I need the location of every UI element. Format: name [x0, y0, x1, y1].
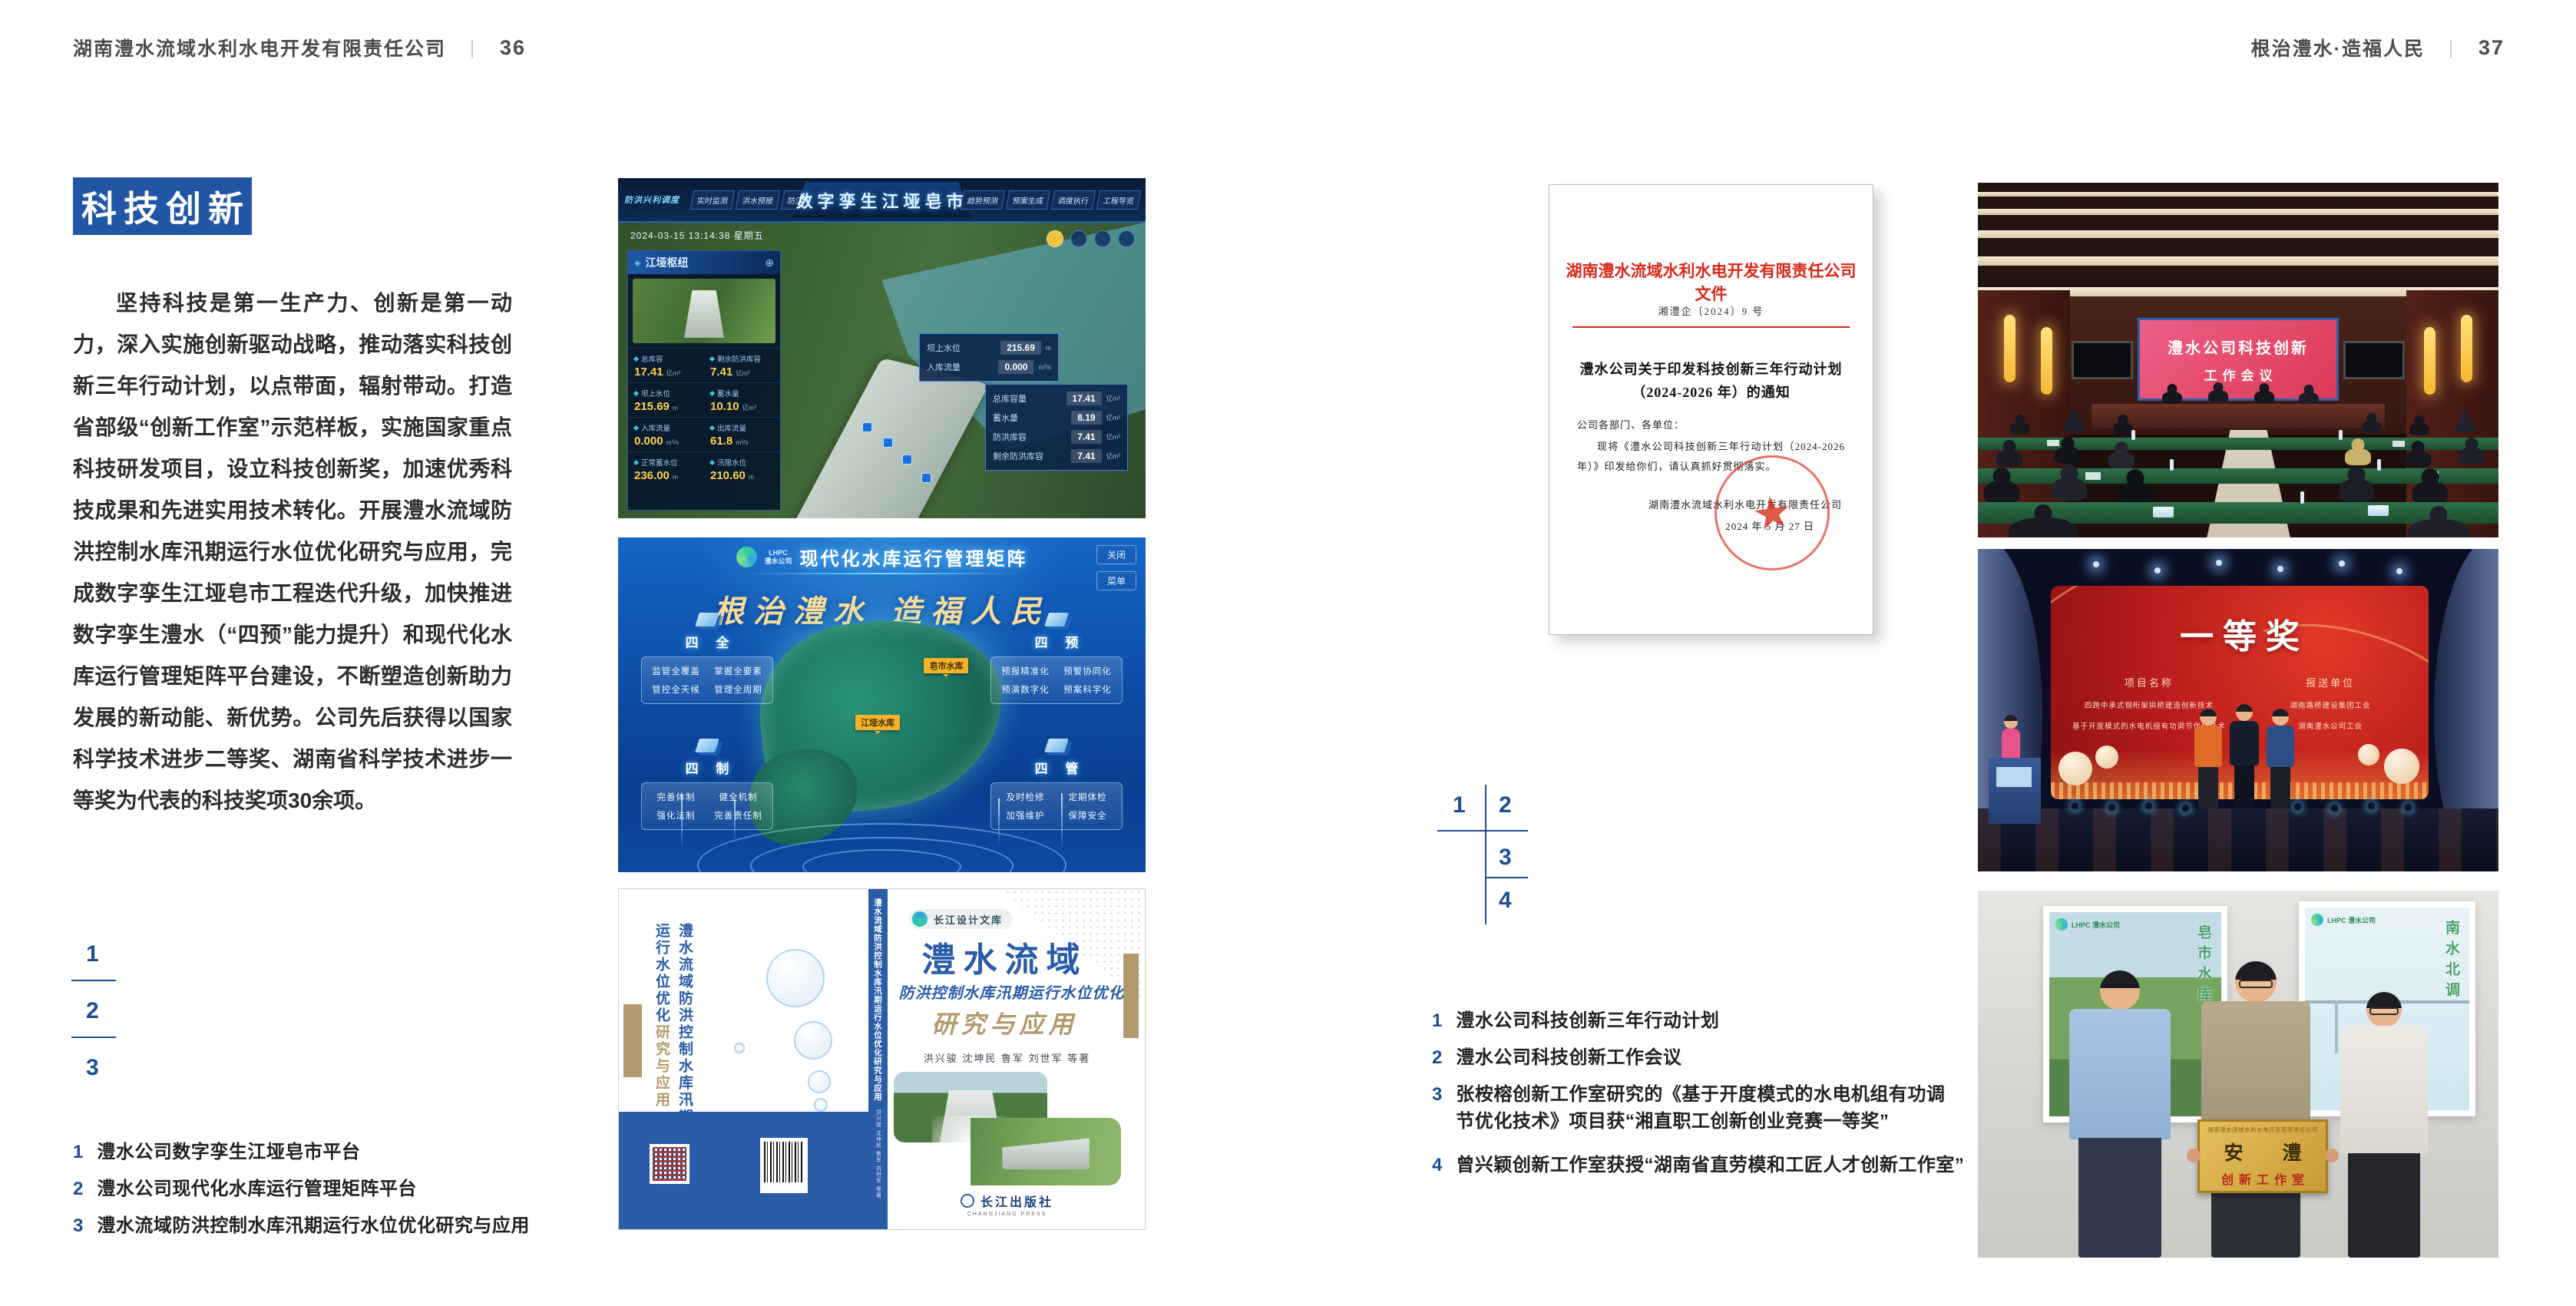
caption-number: 1 — [1432, 1007, 1442, 1034]
person-silhouette — [2455, 420, 2475, 432]
person-silhouette — [2339, 479, 2374, 502]
spine-authors: 洪兴骏 沈坤民 鲁军 刘世军 等著 — [875, 1109, 882, 1199]
caption-row: 3 张桉榕创新工作室研究的《基于开度模式的水电机组有功调节优化技术》项目获“湘直… — [1432, 1081, 1960, 1135]
man-khaki-polo — [2201, 961, 2310, 1258]
flower-sphere — [2384, 749, 2419, 784]
map-pin-icon — [883, 438, 893, 448]
dashboard-tab-group-right: 趋势预测 预案生成 调度执行 工程导览 — [962, 190, 1139, 210]
person-silhouette — [1984, 481, 2019, 504]
spotlight — [2216, 560, 2222, 566]
water-droplet — [794, 1021, 832, 1060]
plaque-header: 湖南澧水流域水利水电开发有限责任公司 — [2207, 1126, 2318, 1134]
back-cover-accent — [623, 1004, 642, 1077]
tissue-box — [2153, 507, 2174, 517]
cover-photo-power-plant — [971, 1118, 1121, 1185]
glasses-icon — [2369, 1007, 2399, 1015]
figure-index-number: 2 — [1499, 792, 1512, 818]
caption-text: 澧水公司现代化水库运行管理矩阵平台 — [97, 1175, 417, 1202]
caption-text: 澧水公司科技创新三年行动计划 — [1456, 1007, 1719, 1034]
person-silhouette — [2010, 422, 2030, 435]
caption-text: 澧水公司数字孪生江垭皂市平台 — [97, 1139, 360, 1165]
light-pillar — [998, 798, 1000, 845]
dashboard-tab: 实时监测 — [690, 190, 735, 210]
page-number-right: 37 — [2478, 36, 2505, 60]
publisher-logo-icon — [912, 911, 928, 927]
figure-index-divider — [1437, 830, 1528, 832]
spotlight — [2277, 566, 2283, 572]
light-pillar — [681, 795, 683, 849]
barcode — [760, 1138, 808, 1193]
presenter-dark-suit — [2228, 704, 2260, 808]
spotlight — [2154, 567, 2161, 574]
spotlight — [2093, 561, 2099, 567]
hand — [2187, 1149, 2201, 1162]
map-pin-icon — [921, 473, 931, 483]
tissue-box — [2368, 505, 2389, 516]
dashboard-tab: 预案生成 — [1006, 190, 1050, 210]
front-cover-accent — [1123, 954, 1139, 1038]
stat-cell: 汛限水位210.60m — [704, 451, 780, 486]
cube-icon — [1044, 739, 1069, 752]
person-silhouette — [2009, 517, 2078, 537]
water-droplet — [766, 949, 825, 1007]
document-title: （2024-2026 年）的通知 — [1549, 382, 1873, 402]
meeting-screen-subtitle: 工作会议 — [2199, 365, 2278, 384]
locate-icon — [1094, 230, 1111, 247]
dashboard-timestamp: 2024-03-15 13:14:38 星期五 — [630, 229, 764, 242]
figure-book-cover: 澧水流域防洪控制水库汛期运行水位优化研究与应用 澧水流域防洪控制水库汛期运行水位… — [618, 888, 1146, 1230]
dashboard-title: 数字孪生江垭皂市 — [793, 182, 971, 218]
meeting-screen-title: 澧水公司科技创新 — [2168, 336, 2309, 358]
figure-matrix-platform: LHPC澧水公司 现代化水库运行管理矩阵 关闭 菜单 根治澧水 造福人民 江垭水… — [618, 537, 1146, 872]
book-authors: 洪兴骏 沈坤民 鲁军 刘世军 等著 — [888, 1050, 1126, 1065]
dashboard-tab: 工程导览 — [1096, 190, 1141, 210]
company-logo-icon — [736, 547, 756, 567]
person-silhouette — [2345, 448, 2371, 465]
person-silhouette — [2459, 448, 2485, 465]
side-panel-title: 江垭枢纽 — [645, 255, 688, 270]
book-spine: 澧水流域防洪控制水库汛期运行水位优化研究与应用 洪兴骏 沈坤民 鲁军 刘世军 等… — [868, 889, 888, 1230]
page-motto: 根治澧水·造福人民 — [2251, 34, 2425, 61]
caption-row: 1 澧水公司数字孪生江垭皂市平台 — [73, 1139, 534, 1165]
cube-icon — [1044, 613, 1069, 627]
person-silhouette — [2405, 451, 2431, 468]
side-panel-header: ◈ 江垭枢纽 ⊕ — [628, 251, 780, 274]
plaque-subtitle: 创新工作室 — [2216, 1169, 2310, 1188]
glasses-icon — [2239, 980, 2273, 988]
stat-cell: 坝上水位215.69m — [628, 382, 704, 417]
light-pillar — [1061, 793, 1063, 851]
person-silhouette — [2052, 478, 2087, 501]
person-silhouette — [2409, 423, 2429, 435]
company-logo-icon: LHPC 澧水公司 — [2055, 918, 2120, 931]
caption-text: 澧水流域防洪控制水库汛期运行水位优化研究与应用 — [97, 1212, 530, 1239]
caption-row: 4 曾兴颖创新工作室获授“湖南省直劳模和工匠人才创新工作室” — [1432, 1152, 1969, 1179]
figure-index-number: 1 — [86, 941, 99, 967]
flower-sphere — [2095, 746, 2118, 769]
water-droplet — [734, 1043, 745, 1053]
map-tooltip: 坝上水位215.69m 入库流量0.000m³/s — [919, 333, 1059, 382]
document-heading: 湖南澧水流域水利水电开发有限责任公司文件 — [1563, 259, 1859, 305]
flower-sphere — [2058, 752, 2092, 785]
stat-cell: 出库流量61.8m³/s — [704, 417, 780, 451]
figure-index-number: 1 — [1453, 792, 1466, 818]
caption-number: 1 — [73, 1139, 83, 1165]
dashboard-corner-label: 防洪兴利调度 — [624, 193, 680, 206]
map-info-box: 总库容量17.41亿m³ 蓄水量8.19亿m³ 防洪库容7.41亿m³ 剩余防洪… — [985, 384, 1128, 471]
matrix-group-siguan: 四 管 及时检修定期体检 加强维护保障安全 — [990, 739, 1123, 830]
caption-number: 2 — [73, 1175, 83, 1202]
water-bottle — [2377, 459, 2381, 471]
water-droplet — [808, 1070, 831, 1093]
caption-row: 2 澧水公司科技创新工作会议 — [1432, 1044, 1969, 1071]
figure-index-number: 4 — [1499, 888, 1512, 914]
person-silhouette — [2064, 419, 2084, 431]
stat-cell: 正常蓄水位236.00m — [628, 451, 704, 486]
matrix-title: 现代化水库运行管理矩阵 — [800, 544, 1028, 570]
cube-icon — [695, 613, 719, 627]
matrix-group-sizhi: 四 制 完善体制健全机制 强化法制完善责任制 — [641, 739, 773, 830]
head-table — [2092, 404, 2385, 428]
woman-white-top — [2340, 992, 2428, 1258]
dashboard-tab: 调度执行 — [1051, 190, 1096, 210]
series-logo: 长江设计文库 — [909, 909, 1012, 929]
water-bottle — [2170, 459, 2174, 471]
water-droplet — [814, 1098, 828, 1112]
flower-sphere — [2358, 744, 2379, 765]
caption-number: 2 — [1432, 1044, 1442, 1071]
paper — [2085, 472, 2101, 480]
person-silhouette — [2412, 481, 2448, 504]
award-title: 一等奖 — [2051, 609, 2429, 658]
stage-light — [2107, 802, 2117, 812]
body-paragraph: 坚持科技是第一生产力、创新是第一动力，深入实施创新驱动战略，推动落实科技创新三年… — [73, 283, 512, 822]
company-logo-icon: LHPC 澧水公司 — [2311, 914, 2376, 926]
user-icon — [1047, 230, 1063, 247]
man-light-blue-polo — [2069, 970, 2171, 1258]
caption-row: 1 澧水公司科技创新三年行动计划 — [1432, 1007, 1969, 1034]
document-title: 澧水公司关于印发科技创新三年行动计划 — [1549, 359, 1873, 379]
light-pillar — [734, 799, 736, 841]
publisher-block: 长江出版社 CHANGJIANG PRESS — [888, 1192, 1126, 1217]
stage-light — [2403, 802, 2413, 812]
cube-icon — [695, 739, 719, 752]
map-pin-icon — [862, 422, 872, 432]
stage-light — [2070, 801, 2080, 811]
spotlight — [2396, 568, 2402, 574]
map-pin-label: 江垭水库 — [855, 715, 900, 730]
stage-light — [2366, 801, 2376, 811]
hand — [2325, 1149, 2339, 1162]
spotlight — [2339, 560, 2345, 567]
wall-lamp — [2424, 327, 2435, 395]
map-pin-label: 皂市水库 — [924, 658, 968, 673]
expand-icon: ⊕ — [765, 256, 774, 269]
photo-innovation-meeting: 澧水公司科技创新 工作会议 — [1978, 183, 2498, 537]
caption-number: 4 — [1432, 1152, 1442, 1179]
header-glow-line — [744, 573, 1020, 574]
awardee-blue-jacket — [2265, 709, 2296, 808]
water-bottle — [2131, 430, 2135, 440]
wall-lamp — [2461, 315, 2472, 382]
stat-cell: 蓄水量10.10亿m³ — [704, 382, 780, 417]
caption-row: 3 澧水流域防洪控制水库汛期运行水位优化研究与应用 — [73, 1212, 549, 1239]
figure-index-divider — [71, 1037, 116, 1038]
diamond-icon: ◈ — [634, 258, 640, 268]
figure-index-number: 2 — [86, 998, 99, 1024]
stage-light — [2144, 801, 2154, 811]
person-silhouette — [2362, 421, 2382, 433]
person-silhouette — [2113, 422, 2133, 435]
running-header-left: 湖南澧水流域水利水电开发有限责任公司 ｜ 36 — [73, 34, 526, 61]
host-podium — [1989, 758, 2041, 824]
wall-tv — [2343, 341, 2405, 379]
settings-icon — [1118, 230, 1135, 247]
book-title: 澧水流域 — [888, 932, 1122, 981]
caption-text: 张桉榕创新工作室研究的《基于开度模式的水电机组有功调节优化技术》项目获“湘直职工… — [1456, 1081, 1951, 1135]
figure-index-divider — [1485, 877, 1528, 878]
wall-tv — [2072, 341, 2133, 379]
spine-title: 澧水流域防洪控制水库汛期运行水位优化研究与应用 — [872, 898, 884, 1102]
dashboard-header-bar: 防洪兴利调度 实时监测 洪水预报 防汛预警 数字孪生江垭皂市 趋势预测 预案生成… — [618, 178, 1146, 223]
caption-text: 曾兴颖创新工作室获授“湖南省直劳模和工匠人才创新工作室” — [1456, 1152, 1964, 1179]
stage-floor — [1978, 808, 2498, 871]
stat-cell: 总库容17.41亿m³ — [628, 348, 704, 382]
person-silhouette — [2299, 392, 2319, 405]
document-number: 湘澧企〔2024〕9 号 — [1549, 303, 1873, 318]
figure-index-number: 3 — [86, 1055, 99, 1081]
dashboard-tab: 趋势预测 — [961, 190, 1005, 210]
stage-light — [2181, 803, 2191, 813]
person-silhouette — [2162, 392, 2182, 404]
company-name: 湖南澧水流域水利水电开发有限责任公司 — [73, 34, 446, 61]
publisher-logo-icon — [961, 1194, 974, 1208]
water-bottle — [2300, 491, 2304, 504]
person-silhouette — [2254, 391, 2274, 403]
map-pin-icon — [902, 455, 912, 465]
person-silhouette — [2408, 519, 2469, 537]
stat-cell: 入库流量0.000m³/s — [628, 417, 704, 451]
poster-bridge-pier — [2335, 1000, 2338, 1053]
logo-caption: LHPC澧水公司 — [764, 549, 792, 566]
dashboard-toolbar — [1047, 230, 1135, 247]
award-plaque: 湖南澧水流域水利水电开发有限责任公司 安 澧 创新工作室 — [2197, 1119, 2328, 1193]
photo-award-ceremony: 一等奖 项目名称 四跨中承式钢桁架拱桥建造创新技术 基于开度模式的水电机组有功调… — [1978, 549, 2498, 871]
caption-number: 3 — [73, 1212, 83, 1239]
stat-cell: 剩余防洪库容7.41亿m³ — [704, 348, 780, 382]
poster-vertical-title: 南水北调 — [2441, 920, 2462, 1003]
book-subtitle: 防洪控制水库汛期运行水位优化 — [888, 980, 1136, 1003]
header-separator: ｜ — [2442, 35, 2462, 61]
matrix-group-siyu: 四 预 预报精准化预警协同化 预演数字化预案科学化 — [990, 613, 1123, 704]
wall-lamp — [2041, 327, 2052, 395]
caption-row: 2 澧水公司现代化水库运行管理矩阵平台 — [73, 1175, 534, 1202]
water-bottle — [2339, 430, 2343, 440]
running-header-right: 根治澧水·造福人民 ｜ 37 — [2251, 34, 2505, 61]
photo-official-document: 湖南澧水流域水利水电开发有限责任公司文件 湘澧企〔2024〕9 号 澧水公司关于… — [1549, 184, 1873, 635]
qr-code — [650, 1144, 689, 1184]
paper — [2392, 441, 2405, 447]
caption-number: 3 — [1432, 1081, 1442, 1108]
magazine-spread: 湖南澧水流域水利水电开发有限责任公司 ｜ 36 科技创新 坚持科技是第一生产力、… — [0, 0, 2576, 1306]
page-number-left: 36 — [500, 36, 526, 60]
person-silhouette — [2055, 447, 2081, 464]
document-red-rule — [1572, 326, 1850, 328]
wall-lamp — [2004, 315, 2015, 382]
dam-structure — [684, 290, 724, 338]
paper — [2047, 440, 2059, 446]
layers-icon — [1070, 230, 1087, 247]
figure-index-number: 3 — [1499, 845, 1512, 871]
dashboard-side-panel: ◈ 江垭枢纽 ⊕ 总库容17.41亿m³ 剩余防洪库容7.41亿m³ 坝上水位2… — [627, 250, 781, 511]
awardee-orange-jacket — [2193, 709, 2224, 808]
dashboard-tab: 洪水预报 — [736, 190, 780, 210]
dam-thumbnail-photo — [633, 279, 775, 343]
person-silhouette — [2108, 451, 2135, 468]
person-silhouette — [1996, 450, 2022, 467]
stats-grid: 总库容17.41亿m³ 剩余防洪库容7.41亿m³ 坝上水位215.69m 蓄水… — [628, 348, 780, 486]
figure-index-divider — [1485, 785, 1486, 924]
person-silhouette — [2208, 390, 2228, 402]
matrix-group-siquan: 四 全 监管全覆盖掌握全要素 管控全天候管理全周期 — [641, 613, 773, 704]
close-button: 关闭 — [1096, 545, 1136, 564]
book-subtitle2: 研究与应用 — [888, 1005, 1122, 1040]
section-badge: 科技创新 — [73, 177, 252, 235]
back-cover-vertical-title: 澧水流域防洪控制水库汛期运行水位优化研究与应用 — [650, 923, 696, 1138]
figure-index-divider — [71, 980, 116, 981]
photo-innovation-studio: LHPC 澧水公司 皂市水库 LHPC 澧水公司 南水北调 — [1978, 891, 2498, 1258]
stage-light — [2330, 803, 2340, 813]
matrix-header: LHPC澧水公司 现代化水库运行管理矩阵 — [736, 544, 1027, 570]
header-separator: ｜ — [463, 35, 483, 61]
figure-digital-twin-platform: 防洪兴利调度 实时监测 洪水预报 防汛预警 数字孪生江垭皂市 趋势预测 预案生成… — [618, 178, 1146, 518]
caption-text: 澧水公司科技创新工作会议 — [1456, 1044, 1682, 1071]
document-salutation: 公司各部门、各单位： — [1577, 417, 1685, 431]
plaque-title: 安 澧 — [2207, 1138, 2319, 1165]
